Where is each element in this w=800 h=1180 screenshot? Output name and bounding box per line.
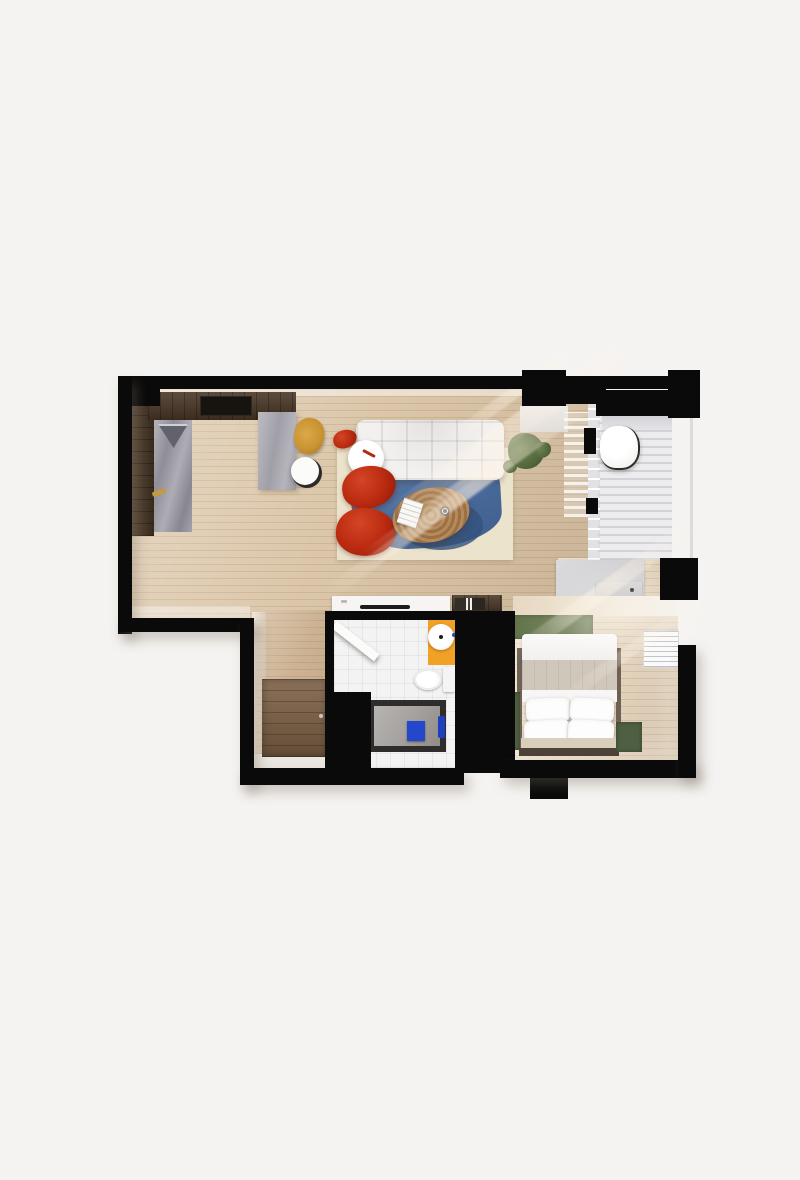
wall-column-top-right — [668, 370, 700, 418]
balcony-lounge-chair — [600, 426, 640, 470]
bedroom-right-wall — [678, 645, 696, 778]
exterior-wall-top — [118, 376, 700, 389]
entry-door-handle — [319, 714, 323, 718]
shaft-wall-between-rooms — [455, 611, 515, 773]
bedroom-radiator — [643, 630, 679, 668]
console-accessory — [341, 600, 347, 603]
shoe-bench — [596, 582, 642, 597]
blue-towel — [438, 716, 445, 738]
basin-drain — [439, 635, 443, 639]
toilet-bowl — [414, 669, 442, 690]
window-mullion-lower — [586, 498, 598, 514]
toilet-tank — [443, 667, 455, 692]
potted-plant — [508, 433, 544, 469]
balcony-railing — [690, 414, 693, 560]
white-stool — [291, 457, 319, 485]
balcony-corner-block — [660, 558, 698, 600]
bathroom-bottom-wall — [240, 768, 464, 785]
kitchen-tall-cabinet — [130, 400, 154, 536]
bedroom-bottom-wall — [500, 760, 696, 778]
coffee-machine — [470, 598, 485, 610]
floor-plan-render: { "scene": { "type": "apartment-floor-pl… — [0, 0, 800, 1180]
wall-face-bottom-left — [132, 606, 250, 618]
bed-duvet — [522, 634, 617, 662]
window-mullion-upper — [584, 428, 596, 454]
blue-bath-mat — [407, 721, 425, 741]
bed-footboard — [519, 748, 619, 756]
wardrobe-top-band — [513, 596, 678, 616]
green-panel-right — [616, 722, 642, 752]
hallway-left-wall — [240, 618, 254, 785]
entry-door — [262, 679, 327, 757]
cooktop — [200, 396, 252, 416]
wall-band-top-right-a — [522, 376, 606, 404]
wall-column-bottom — [530, 778, 568, 799]
microwave — [455, 598, 468, 610]
exterior-wall-left — [118, 376, 132, 634]
kitchen-island — [258, 412, 296, 490]
living-room-bottom-wall — [118, 618, 254, 632]
bed-blanket — [522, 660, 617, 690]
cup — [440, 506, 450, 516]
tv-soundbar — [360, 605, 410, 609]
shoe-bench-handle — [630, 588, 634, 592]
bathroom-corner-block — [325, 692, 371, 770]
column-face — [520, 406, 568, 432]
